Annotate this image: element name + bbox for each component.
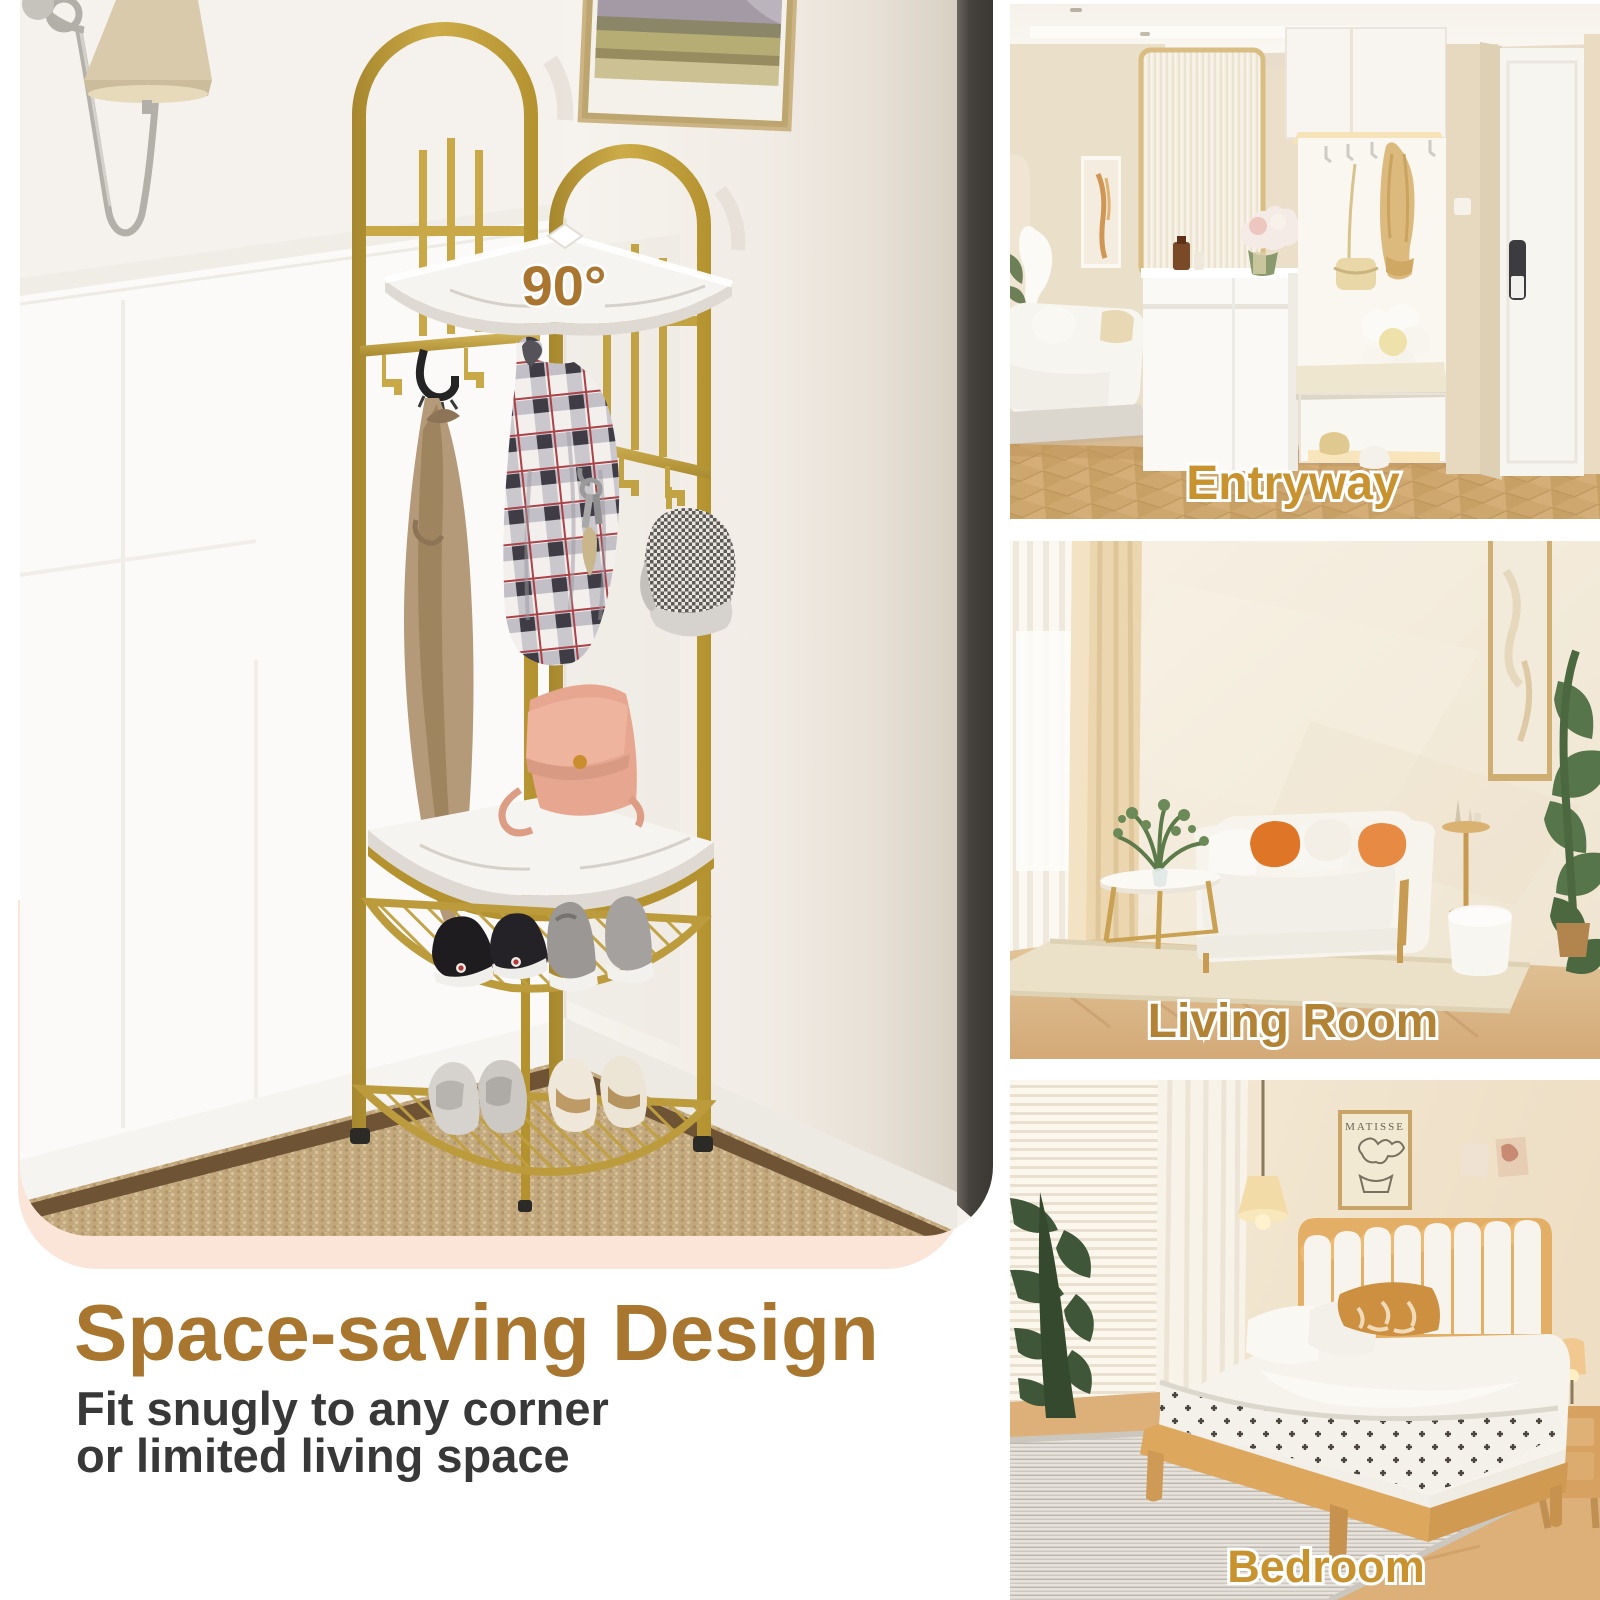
svg-text:MATISSE: MATISSE xyxy=(1345,1121,1405,1133)
svg-text:Entryway: Entryway xyxy=(1186,457,1400,510)
svg-text:Living Room: Living Room xyxy=(1148,995,1439,1048)
svg-text:90°: 90° xyxy=(522,254,607,317)
svg-text:Bedroom: Bedroom xyxy=(1227,1541,1425,1592)
